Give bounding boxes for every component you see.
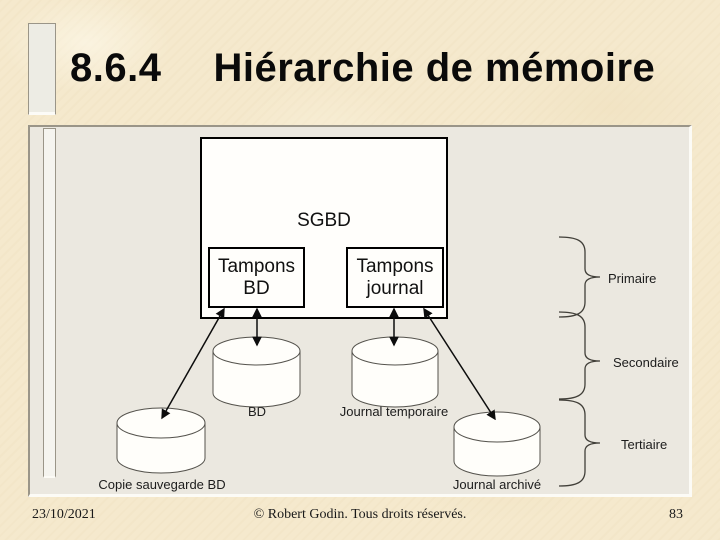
copie-sauvegarde-label: Copie sauvegarde BD [92,477,232,492]
template-accent-bar-top [28,23,56,115]
tampons-bd-line1: Tampons [218,256,295,278]
tampons-journal-line1: Tampons [356,256,433,278]
sgbd-label: SGBD [200,210,448,232]
slide-title: 8.6.4 Hiérarchie de mémoire [70,46,655,91]
journal-temporaire-label: Journal temporaire [333,404,455,419]
tampons-journal-box: Tampons journal [346,247,444,308]
bd-cylinder-label: BD [217,404,297,419]
section-number: 8.6.4 [70,46,161,91]
tampons-journal-line2: journal [366,278,423,300]
journal-archive-label: Journal archivé [437,477,557,492]
page-number: 83 [669,507,683,523]
tampons-bd-line2: BD [243,278,269,300]
tier-secondaire-label: Secondaire [613,355,679,370]
tampons-bd-box: Tampons BD [208,247,305,308]
slide: 8.6.4 Hiérarchie de mémoire SGBD Tampons… [0,0,720,540]
tier-primaire-label: Primaire [608,271,656,286]
template-accent-bar-left [43,128,56,478]
footer-copyright: © Robert Godin. Tous droits réservés. [0,507,720,523]
tier-tertiaire-label: Tertiaire [621,437,667,452]
page-title: Hiérarchie de mémoire [213,46,655,91]
